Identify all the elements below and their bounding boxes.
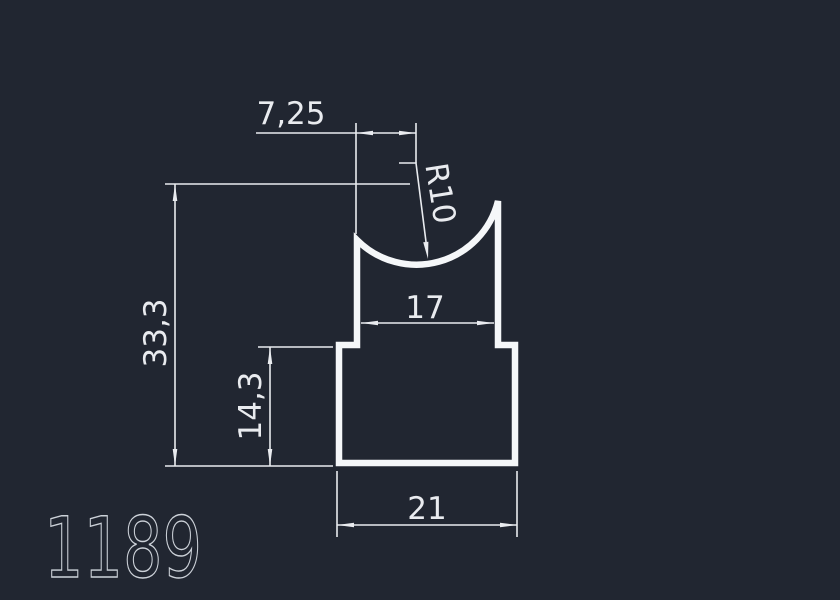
profile-drawing: 7,25 R10 33,3 17 14,3 21 1189 [0,0,840,600]
total-height-label: 33,3 [138,298,174,367]
base-width-label: 21 [407,491,446,527]
part-number-label: 1189 [44,499,202,597]
offset-top-label: 7,25 [256,96,325,132]
base-height-label: 14,3 [233,371,269,440]
cad-drawing-canvas: 7,25 R10 33,3 17 14,3 21 1189 [0,0,840,600]
inner-width-label: 17 [405,290,444,326]
